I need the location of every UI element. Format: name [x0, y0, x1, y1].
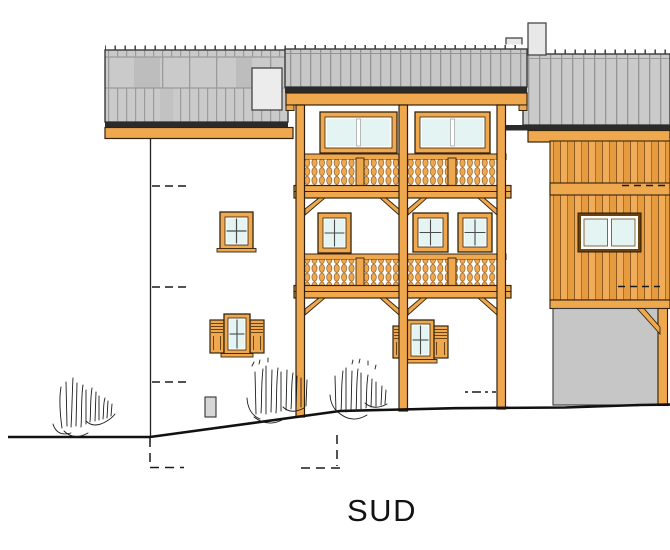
window-right-wing [578, 213, 641, 252]
ridge-ticks-right [526, 49, 670, 54]
knee-brace [408, 298, 427, 315]
bush-strokes [335, 368, 386, 412]
window-sill [404, 360, 437, 364]
shutter-right [433, 326, 448, 358]
railing-separator-post [448, 258, 456, 286]
fascia-dormer [286, 93, 527, 105]
window-mid-right [458, 213, 492, 252]
window-sill [217, 249, 256, 253]
roof-vent-box [252, 68, 282, 110]
elevation-drawing: SUD [0, 0, 670, 550]
window-glass [612, 219, 636, 246]
window-top-left [320, 112, 397, 153]
fascia-left [105, 128, 293, 139]
main-roof-left [105, 46, 293, 139]
fascia-return-right [519, 105, 527, 111]
window-left-wall-shuttered [210, 314, 264, 357]
post-left [296, 105, 305, 417]
roof-panel-dark [160, 88, 172, 122]
railing-balusters [305, 260, 399, 286]
shutter-left [210, 320, 224, 353]
window-mid-left [318, 213, 351, 253]
bush-base-curves [53, 414, 115, 437]
post-right [497, 105, 506, 409]
window-mid-center [413, 213, 448, 252]
bush-tip-ticks [352, 359, 376, 369]
window-left-wall-upper [217, 212, 256, 252]
roof-panel-dark [236, 57, 252, 88]
railing-separator-post [356, 258, 364, 286]
central-balcony-bay [294, 105, 511, 417]
window-mullion [357, 119, 361, 146]
roof-surface-right [523, 54, 670, 125]
knee-brace [305, 298, 325, 315]
window-glass [584, 219, 608, 246]
utility-box [205, 397, 216, 417]
eave-shadow-right [505, 125, 670, 131]
fascia-right [528, 131, 670, 143]
garage-lintel [550, 300, 670, 309]
dormer-roof [285, 45, 527, 111]
roof-panel-dark [134, 57, 160, 88]
railing-separator-post [356, 158, 364, 186]
elevation-label: SUD [347, 493, 417, 528]
knee-brace [380, 298, 399, 315]
roof-row-top [105, 50, 288, 57]
roof-surface-dormer [285, 49, 527, 87]
knee-brace [478, 298, 497, 315]
bush-strokes [60, 378, 112, 428]
elevation-drawing-canvas: SUD [0, 0, 670, 550]
fascia-return-left [286, 105, 294, 111]
window-sill [221, 354, 253, 358]
main-roof-right [523, 49, 670, 125]
knee-brace [380, 198, 399, 215]
post-center [399, 105, 408, 411]
bush-tip-ticks [252, 358, 268, 366]
eave-shadow-dormer [285, 87, 527, 93]
railing-balusters [305, 160, 399, 186]
right-wing [550, 141, 670, 406]
foundation-hidden-lines [150, 435, 346, 468]
window-top-right [415, 112, 490, 153]
railing-separator-post [448, 158, 456, 186]
garage-opening [553, 309, 658, 406]
bush-left [53, 378, 115, 437]
shutter-right [250, 320, 264, 353]
garage-post [658, 309, 668, 406]
chimney-2 [528, 23, 546, 55]
window-mullion [451, 119, 455, 146]
eave-shadow-left [105, 122, 288, 128]
bush-base-curves [330, 395, 387, 419]
left-wall [151, 138, 265, 437]
